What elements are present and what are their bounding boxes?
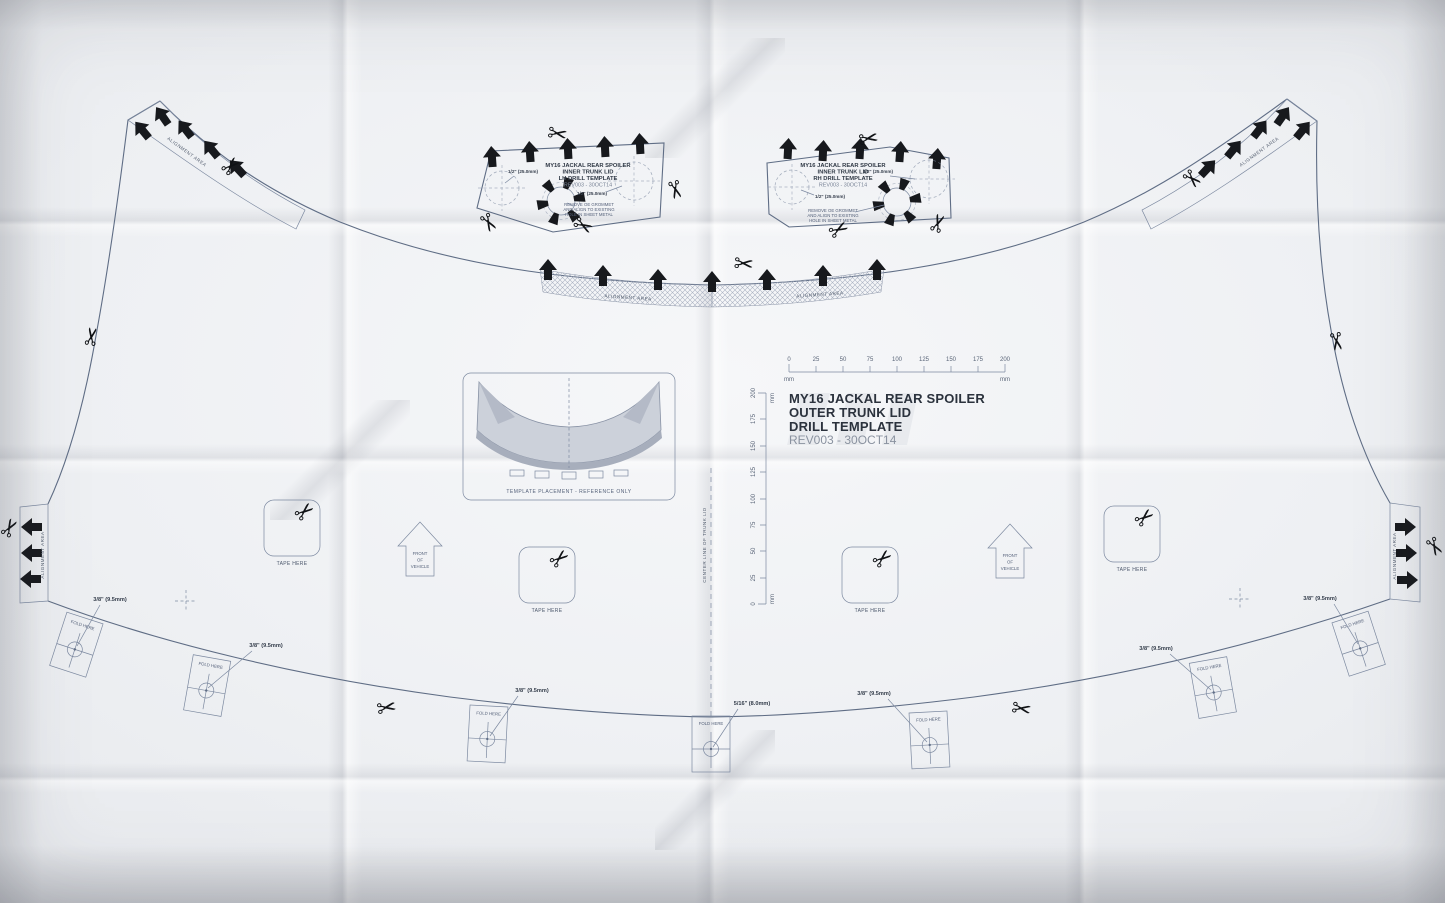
fold-here-label: FOLD HERE [699,721,724,726]
tape-here-label: TAPE HERE [532,608,563,614]
fold-here-label: FOLD HERE [1197,663,1222,672]
ruler-tick: 75 [867,357,874,363]
hole-size-label: 1/2" (25.0mm) [815,194,845,199]
drill-tabs: FOLD HERE 3/8" (9.5mm) FOLD HERE 3/8" (9… [50,596,1386,772]
ruler-tick: 25 [751,574,757,581]
alignment-arrow-icon [172,115,199,143]
scissors-icon: ✂ [471,207,505,238]
ruler-unit: mm [1000,377,1010,383]
scissors-icon: ✂ [732,249,754,279]
ruler-unit: mm [784,377,794,383]
fold-here-label: FOLD HERE [916,716,941,722]
alignment-area-label: ALIGNMENT AREA [40,531,45,579]
center-line-label: CENTER LINE OF TRUNK LID [702,507,707,583]
alignment-arrow-icon [779,138,798,160]
hole-size-label: 1/2" (25.0mm) [863,169,893,174]
fold-tab: FOLD HERE [909,711,950,769]
ruler-unit: mm [770,594,776,604]
fold-tab: FOLD HERE [1332,611,1385,676]
ruler-tick: 200 [751,387,757,398]
alignment-arrow-icon [1220,135,1247,163]
placement-caption: TEMPLATE PLACEMENT - REFERENCE ONLY [506,489,631,495]
lh-title-3: LH DRILL TEMPLATE [559,176,618,182]
rh-title-2: INNER TRUNK LID [818,170,869,176]
alignment-arrow-icon [927,147,946,169]
ruler-tick: 50 [751,547,757,554]
tape-here-square: ✂ TAPE HERE [1104,501,1162,573]
title-line-2: OUTER TRUNK LID [789,405,911,420]
alignment-arrow-icon [890,140,909,162]
lh-inner-template: MY16 JACKAL REAR SPOILER INNER TRUNK LID… [477,133,664,232]
alignment-arrow-icon [1397,571,1418,589]
fold-here-label: FOLD HERE [198,661,223,670]
lh-title-2: INNER TRUNK LID [563,170,614,176]
alignment-arrow-icon [520,140,539,162]
drill-size-label: 3/8" (9.5mm) [93,597,127,603]
title-line-1: MY16 JACKAL REAR SPOILER [789,391,985,406]
drill-size-label: 5/16" (8.0mm) [734,701,771,707]
scissors-icon: ✂ [1009,694,1034,725]
horizontal-scale-ruler: 0 25 50 75 100 125 150 175 200 mm mm [784,357,1011,383]
tape-here-square: ✂ TAPE HERE [519,542,577,614]
fold-tab: FOLD HERE [184,655,231,717]
alignment-area-top-right: ALIGNMENT AREA [1142,99,1317,229]
ruler-tick: 100 [892,357,903,363]
scissors-icon: ✂ [374,693,399,724]
drill-size-label: 3/8" (9.5mm) [1139,646,1173,652]
ruler-tick: 125 [919,357,930,363]
front-of-vehicle-arrow: FRONT OF VEHICLE [988,524,1032,578]
vehicle-label: VEHICLE [411,564,430,569]
front-label: FRONT [413,551,428,556]
drill-size-label: 3/8" (9.5mm) [249,643,283,649]
alignment-arrow-icon [814,140,833,162]
alignment-area-right-edge: ALIGNMENT AREA [1390,503,1420,602]
scissors-icon: ✂ [659,177,691,204]
ruler-tick: 0 [751,602,757,606]
ruler-tick: 175 [973,357,984,363]
photographed-paper-template: ALIGNMENT AREA ALIGNMENT AREA ALIGNMENT … [0,0,1445,903]
ruler-tick: 100 [751,493,757,504]
lh-title-4: REV003 - 30OCT14 [564,183,612,189]
registration-marks [175,588,1251,612]
ruler-tick: 0 [787,357,791,363]
alignment-arrow-icon [482,145,501,167]
grommet-hole [872,178,921,227]
front-of-vehicle-arrow: FRONT OF VEHICLE [398,522,442,576]
ruler-unit: mm [770,393,776,403]
fold-tab: FOLD HERE [692,716,730,772]
front-label: FRONT [1003,553,1018,558]
hole-size-label: 1/2" (25.0mm) [577,191,607,196]
lh-title-1: MY16 JACKAL REAR SPOILER [545,163,631,169]
ruler-tick: 200 [1000,357,1011,363]
ruler-tick: 50 [840,357,847,363]
drill-size-label: 3/8" (9.5mm) [857,691,891,697]
ruler-tick: 175 [751,413,757,424]
alignment-arrow-icon [1395,518,1416,536]
ruler-tick: 150 [946,357,957,363]
alignment-arrow-icon [149,102,176,130]
fold-tab: FOLD HERE [1189,657,1236,719]
alignment-area-label: ALIGNMENT AREA [1392,532,1397,580]
template-drawing: ALIGNMENT AREA ALIGNMENT AREA ALIGNMENT … [0,0,1445,903]
title-block: MY16 JACKAL REAR SPOILER OUTER TRUNK LID… [787,391,985,447]
alignment-arrow-icon [1289,116,1316,144]
alignment-arrow-icon [1396,544,1417,562]
drill-size-label: 3/8" (9.5mm) [515,688,549,694]
scissors-icon: ✂ [1417,531,1445,562]
tape-here-label: TAPE HERE [1117,567,1148,573]
alignment-arrow-icon [1269,102,1296,130]
scissors-icon: ✂ [922,209,955,237]
rh-title-3: RH DRILL TEMPLATE [813,176,872,182]
fold-here-label: FOLD HERE [476,710,501,716]
hole-size-label: 1/2" (25.0mm) [508,169,538,174]
of-label: OF [1007,560,1013,565]
fold-tab: FOLD HERE [467,705,508,763]
alignment-arrow-icon [630,133,649,155]
alignment-arrow-icon [1246,115,1273,143]
alignment-arrow-icon [128,116,155,144]
drill-size-label: 3/8" (9.5mm) [1303,596,1337,602]
vertical-scale-ruler: 200 175 150 125 100 75 50 25 0 mm mm [751,387,776,605]
tape-here-label: TAPE HERE [277,561,308,567]
alignment-arrow-icon [21,544,42,562]
tape-here-square: ✂ TAPE HERE [264,495,322,567]
center-line: CENTER LINE OF TRUNK LID [702,468,711,716]
alignment-arrow-icon [595,136,614,158]
ruler-tick: 75 [751,521,757,528]
rh-title-4: REV003 - 30OCT14 [819,183,867,189]
placement-illustration: TEMPLATE PLACEMENT - REFERENCE ONLY [463,373,675,500]
fold-tab: FOLD HERE [50,612,103,677]
cut-line-scissors: ✂ ✂ ✂ ✂ ✂ ✂ ✂ ✂ ✂ ✂ ✂ ✂ ✂ ✂ ✂ ✂ [0,119,1445,725]
tape-here-label: TAPE HERE [855,608,886,614]
vehicle-label: VEHICLE [1001,566,1020,571]
alignment-area-left-edge: ALIGNMENT AREA [20,504,48,603]
ruler-tick: 150 [751,440,757,451]
title-line-3: DRILL TEMPLATE [789,419,903,434]
scissors-icon: ✂ [856,124,881,155]
scissors-icon: ✂ [1320,329,1351,354]
of-label: OF [417,558,423,563]
title-revision: REV003 - 30OCT14 [789,433,897,447]
scissors-icon: ✂ [77,324,108,349]
scissors-icon: ✂ [0,512,27,543]
alignment-area-center: ALIGNMENT AREA ALIGNMENT AREA [539,259,886,307]
alignment-arrow-icon [20,570,41,588]
tape-here-square: ✂ TAPE HERE [842,542,900,614]
ruler-tick: 25 [813,357,820,363]
ruler-tick: 125 [751,466,757,477]
